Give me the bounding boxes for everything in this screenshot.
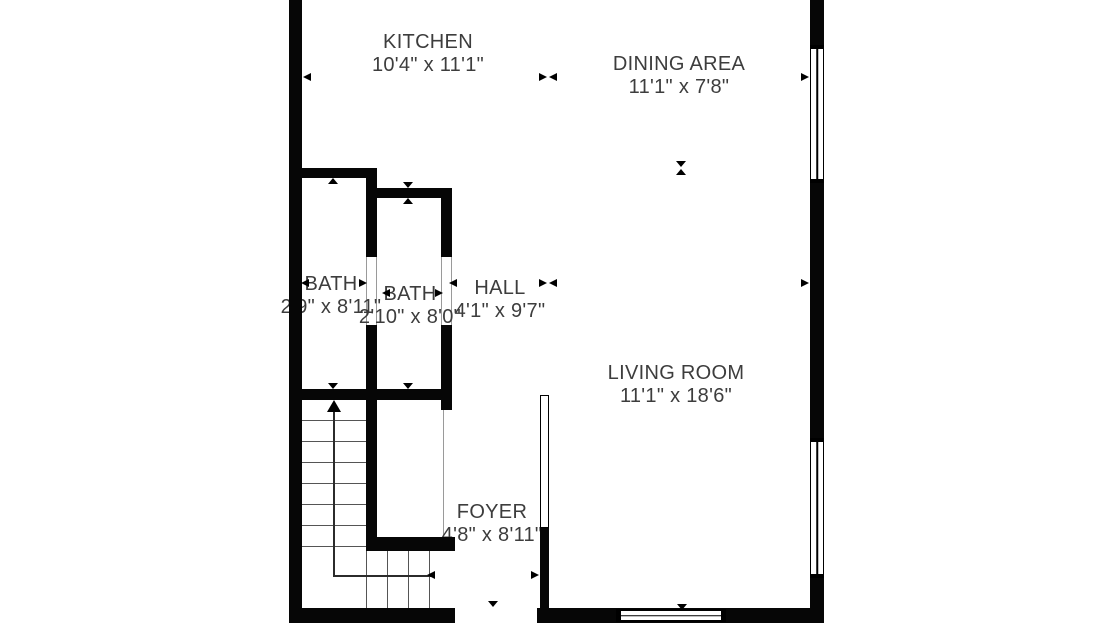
stairs-lower-flight [366, 551, 430, 608]
dim-arrow-left-icon-hall [449, 279, 457, 287]
dim-arrow-left-icon-kitchen-dining [549, 73, 557, 81]
wall-exterior-left [289, 0, 302, 623]
dim-arrow-down-icon-dining [676, 161, 686, 167]
window-symbol-dining [810, 45, 824, 183]
room-label-living-room: LIVING ROOM 11'1" x 18'6" [608, 362, 745, 408]
foyer-partition-opening [540, 395, 549, 528]
window-pane-line [816, 49, 818, 179]
dim-arrow-left-icon-bath1 [301, 279, 309, 287]
dim-arrow-down-icon-bath2-bottom [403, 383, 413, 389]
room-name: KITCHEN [372, 31, 484, 54]
dim-arrow-left-icon-foyer [427, 571, 435, 579]
dim-arrow-right-icon-kitchen-dining [539, 73, 547, 81]
room-dims: 11'1" x 18'6" [608, 385, 745, 408]
room-dims: 4'1" x 9'7" [455, 300, 546, 323]
dim-arrow-right-icon-living [801, 279, 809, 287]
dim-arrow-down-icon-living-bottom [677, 604, 687, 610]
window-symbol-living-right [810, 438, 824, 578]
dim-arrow-left-icon-kitchen [303, 73, 311, 81]
wall-baths-bottom [289, 389, 452, 400]
wall-bath1-bath2-upper [366, 168, 377, 257]
room-label-foyer: FOYER 4'8" x 8'11" [442, 501, 543, 547]
dim-arrow-up-icon-living-top [676, 169, 686, 175]
dim-arrow-left-icon-living [549, 279, 557, 287]
wall-exterior-bottom-left [289, 608, 455, 623]
wall-bath1-bath2-lower [366, 325, 377, 551]
window-symbol-living-bottom [616, 609, 726, 622]
room-dims: 11'1" x 7'8" [613, 76, 745, 99]
wall-bath1-top [289, 168, 377, 178]
dim-arrow-up-icon-bath1-top [328, 178, 338, 184]
window-pane-line [621, 615, 721, 617]
wall-bath2-hall-upper [441, 188, 452, 257]
floor-plan: KITCHEN 10'4" x 11'1" DINING AREA 11'1" … [0, 0, 1110, 623]
dim-arrow-left-icon-bath2 [382, 289, 390, 297]
dim-arrow-down-icon-bath2-top [403, 182, 413, 188]
room-name: BATH [359, 283, 461, 306]
wall-closet-bottom [366, 537, 455, 551]
stairs-direction-line-horizontal [333, 575, 433, 577]
dim-arrow-right-icon-dining [801, 73, 809, 81]
room-name: LIVING ROOM [608, 362, 745, 385]
room-label-hall: HALL 4'1" x 9'7" [455, 277, 546, 323]
dim-arrow-down-icon-bath1-bottom [328, 383, 338, 389]
dim-arrow-right-icon-bath2 [435, 289, 443, 297]
room-label-dining-area: DINING AREA 11'1" x 7'8" [613, 53, 745, 99]
room-label-bath-right: BATH 2'10" x 8'0" [359, 283, 461, 329]
dim-arrow-right-icon-bath1 [359, 279, 367, 287]
dim-arrow-right-icon-foyer [531, 571, 539, 579]
room-dims: 4'8" x 8'11" [442, 524, 543, 547]
dim-arrow-down-icon-entry [488, 601, 498, 607]
room-label-kitchen: KITCHEN 10'4" x 11'1" [372, 31, 484, 77]
room-name: HALL [455, 277, 546, 300]
wall-foyer-living-partition [540, 527, 549, 610]
room-name: DINING AREA [613, 53, 745, 76]
room-name: FOYER [442, 501, 543, 524]
dim-arrow-right-icon-hall [539, 279, 547, 287]
window-pane-line [816, 442, 818, 574]
dim-arrow-up-icon-bath2-below [403, 198, 413, 204]
wall-bath2-top [367, 188, 452, 198]
stairs-up-arrow-icon [327, 400, 341, 412]
stairs-direction-line-vertical [333, 410, 335, 577]
room-dims: 10'4" x 11'1" [372, 54, 484, 77]
